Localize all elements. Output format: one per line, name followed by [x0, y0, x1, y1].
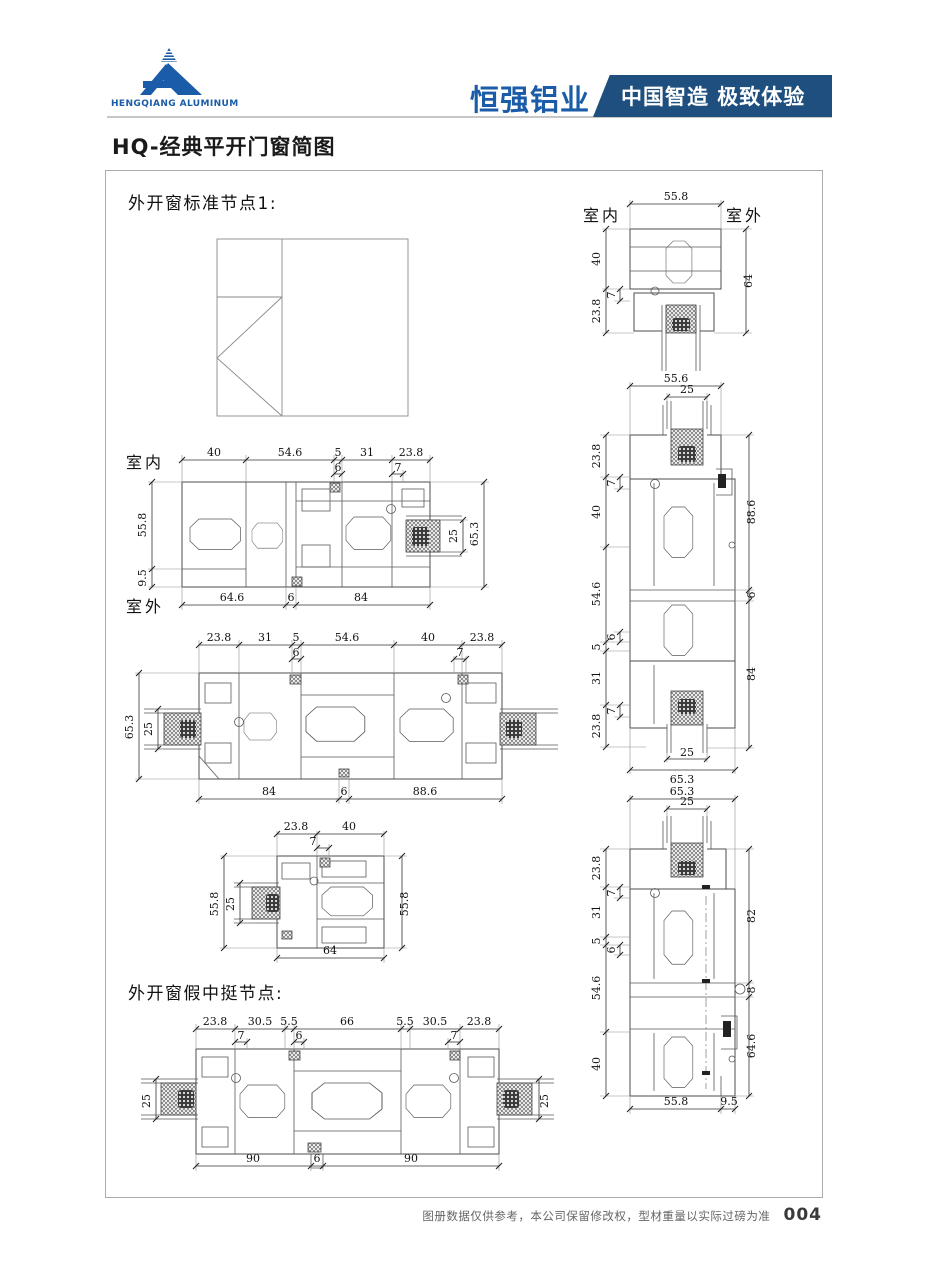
svg-text:6: 6 — [605, 634, 618, 641]
casement-opening-symbol — [217, 297, 282, 416]
svg-text:40: 40 — [590, 1057, 603, 1071]
svg-text:55.8: 55.8 — [208, 892, 221, 917]
cad-drawings: 室内 室外 — [106, 171, 822, 1197]
drawing-sheet: 外开窗标准节点1: 外开窗假中挺节点: — [105, 170, 823, 1198]
svg-text:25: 25 — [680, 795, 694, 808]
svg-text:5.5: 5.5 — [396, 1015, 414, 1028]
section-l2: 23.8 31 5 54.6 40 23.8 6 7 65.3 25 84 6 … — [123, 631, 558, 804]
svg-text:7: 7 — [605, 708, 618, 715]
svg-text:7: 7 — [605, 292, 618, 299]
svg-text:25: 25 — [680, 746, 694, 759]
svg-text:55.8: 55.8 — [664, 190, 689, 203]
svg-text:25: 25 — [680, 383, 694, 396]
window-elevation-schematic — [217, 239, 408, 416]
glass-panes — [667, 401, 707, 429]
page-number: 004 — [784, 1205, 823, 1225]
svg-text:64: 64 — [323, 944, 337, 957]
svg-text:23.8: 23.8 — [590, 856, 603, 881]
section-l3: 23.8 40 7 55.8 25 55.8 64 — [208, 820, 411, 963]
svg-text:8: 8 — [745, 987, 758, 994]
svg-text:25: 25 — [140, 1094, 153, 1108]
profile-drawing — [630, 816, 745, 1096]
svg-text:6: 6 — [605, 947, 618, 954]
svg-text:84: 84 — [745, 667, 758, 681]
svg-text:7: 7 — [395, 461, 402, 474]
svg-text:64.6: 64.6 — [220, 591, 245, 604]
svg-text:23.8: 23.8 — [467, 1015, 492, 1028]
svg-text:54.6: 54.6 — [590, 976, 603, 1001]
section-l1: 室内 室外 — [126, 446, 489, 616]
svg-text:40: 40 — [590, 252, 603, 266]
svg-text:23.8: 23.8 — [207, 631, 232, 644]
svg-text:6: 6 — [335, 461, 342, 474]
svg-text:5: 5 — [293, 631, 300, 644]
svg-text:82: 82 — [745, 909, 758, 923]
svg-text:31: 31 — [258, 631, 272, 644]
svg-text:7: 7 — [605, 890, 618, 897]
svg-text:25: 25 — [224, 897, 237, 911]
svg-text:7: 7 — [310, 835, 317, 848]
svg-text:5.5: 5.5 — [280, 1015, 298, 1028]
svg-text:31: 31 — [590, 905, 603, 919]
svg-text:64.6: 64.6 — [745, 1034, 758, 1059]
svg-text:5: 5 — [335, 446, 342, 459]
svg-text:25: 25 — [447, 529, 460, 543]
svg-text:5: 5 — [590, 644, 603, 651]
slogan-text: 中国智造 极致体验 — [593, 81, 805, 111]
page-footer: 图册数据仅供参考，本公司保留修改权，型材重量以实际过磅为准 004 — [105, 1205, 822, 1225]
svg-text:25: 25 — [142, 722, 155, 736]
company-logo — [130, 47, 208, 97]
footer-disclaimer: 图册数据仅供参考，本公司保留修改权，型材重量以实际过磅为准 — [422, 1209, 770, 1223]
svg-text:25: 25 — [538, 1094, 551, 1108]
svg-text:6: 6 — [314, 1152, 321, 1165]
svg-text:6: 6 — [341, 785, 348, 798]
outdoor-label: 室外 — [126, 597, 164, 616]
svg-text:7: 7 — [238, 1029, 245, 1042]
svg-text:9.5: 9.5 — [720, 1095, 738, 1108]
svg-text:7: 7 — [451, 1029, 458, 1042]
svg-text:54.6: 54.6 — [335, 631, 360, 644]
indoor-label: 室内 — [126, 453, 164, 472]
svg-text:65.3: 65.3 — [468, 522, 481, 547]
svg-text:30.5: 30.5 — [423, 1015, 448, 1028]
catalog-page: HENGQIANG ALUMINUM 恒强铝业 中国智造 极致体验 HQ-经典平… — [0, 0, 930, 1262]
svg-text:54.6: 54.6 — [590, 582, 603, 607]
svg-text:40: 40 — [207, 446, 221, 459]
outdoor-label: 室外 — [726, 206, 764, 225]
section-l4: 23.8 30.5 5.5 66 5.5 30.5 23.8 7 6 7 25 … — [140, 1015, 554, 1171]
slogan-banner: 中国智造 极致体验 — [593, 75, 832, 117]
svg-text:66: 66 — [340, 1015, 354, 1028]
svg-text:40: 40 — [421, 631, 435, 644]
svg-text:90: 90 — [404, 1152, 418, 1165]
svg-text:90: 90 — [246, 1152, 260, 1165]
glass-panes — [667, 816, 707, 843]
svg-text:84: 84 — [262, 785, 276, 798]
svg-text:55.8: 55.8 — [398, 892, 411, 917]
section2-title: 外开窗假中挺节点: — [128, 979, 283, 1004]
svg-text:64: 64 — [742, 274, 755, 288]
profile-drawing — [182, 482, 462, 587]
svg-text:40: 40 — [342, 820, 356, 833]
svg-text:23.8: 23.8 — [590, 714, 603, 739]
section-r1: 室内 室外 55.8 4 — [583, 190, 764, 371]
section-r2: 55.6 25 23.8 7 40 54.6 6 5 31 7 23.8 88.… — [590, 372, 758, 786]
svg-text:54.6: 54.6 — [278, 446, 303, 459]
dimension-labels: 65.3 25 23.8 7 31 5 6 54.6 40 82 8 64.6 … — [590, 785, 758, 1108]
profile-drawing — [630, 229, 721, 371]
profile-drawing — [144, 673, 558, 779]
svg-text:88.6: 88.6 — [745, 500, 758, 525]
svg-text:23.8: 23.8 — [470, 631, 495, 644]
svg-text:30.5: 30.5 — [248, 1015, 273, 1028]
svg-text:31: 31 — [590, 671, 603, 685]
svg-text:55.8: 55.8 — [664, 1095, 689, 1108]
profile-drawing — [141, 1049, 554, 1168]
svg-text:23.8: 23.8 — [203, 1015, 228, 1028]
svg-text:31: 31 — [360, 446, 374, 459]
svg-text:7: 7 — [457, 646, 464, 659]
section-r3: 65.3 25 23.8 7 31 5 6 54.6 40 82 8 64.6 … — [590, 785, 758, 1114]
svg-text:84: 84 — [354, 591, 368, 604]
page-title: HQ-经典平开门窗简图 — [112, 131, 336, 161]
profile-drawing — [234, 856, 384, 948]
svg-text:55.8: 55.8 — [136, 513, 149, 538]
indoor-label: 室内 — [583, 206, 621, 225]
section1-title: 外开窗标准节点1: — [128, 189, 277, 214]
dimension-labels: 23.8 40 7 55.8 25 55.8 64 — [208, 820, 411, 957]
svg-text:88.6: 88.6 — [413, 785, 438, 798]
svg-text:23.8: 23.8 — [399, 446, 424, 459]
svg-text:6: 6 — [745, 592, 758, 599]
svg-text:65.3: 65.3 — [123, 715, 136, 740]
svg-text:6: 6 — [293, 646, 300, 659]
svg-text:5: 5 — [590, 938, 603, 945]
svg-text:23.8: 23.8 — [590, 299, 603, 324]
profile-drawing — [630, 401, 735, 753]
svg-text:40: 40 — [590, 505, 603, 519]
svg-text:9.5: 9.5 — [136, 569, 149, 587]
brand-name-cn: 恒强铝业 — [470, 77, 590, 119]
svg-text:23.8: 23.8 — [284, 820, 309, 833]
svg-text:23.8: 23.8 — [590, 444, 603, 469]
svg-text:6: 6 — [296, 1029, 303, 1042]
svg-text:7: 7 — [605, 480, 618, 487]
company-name-en: HENGQIANG ALUMINUM — [111, 99, 251, 109]
svg-text:6: 6 — [288, 591, 295, 604]
